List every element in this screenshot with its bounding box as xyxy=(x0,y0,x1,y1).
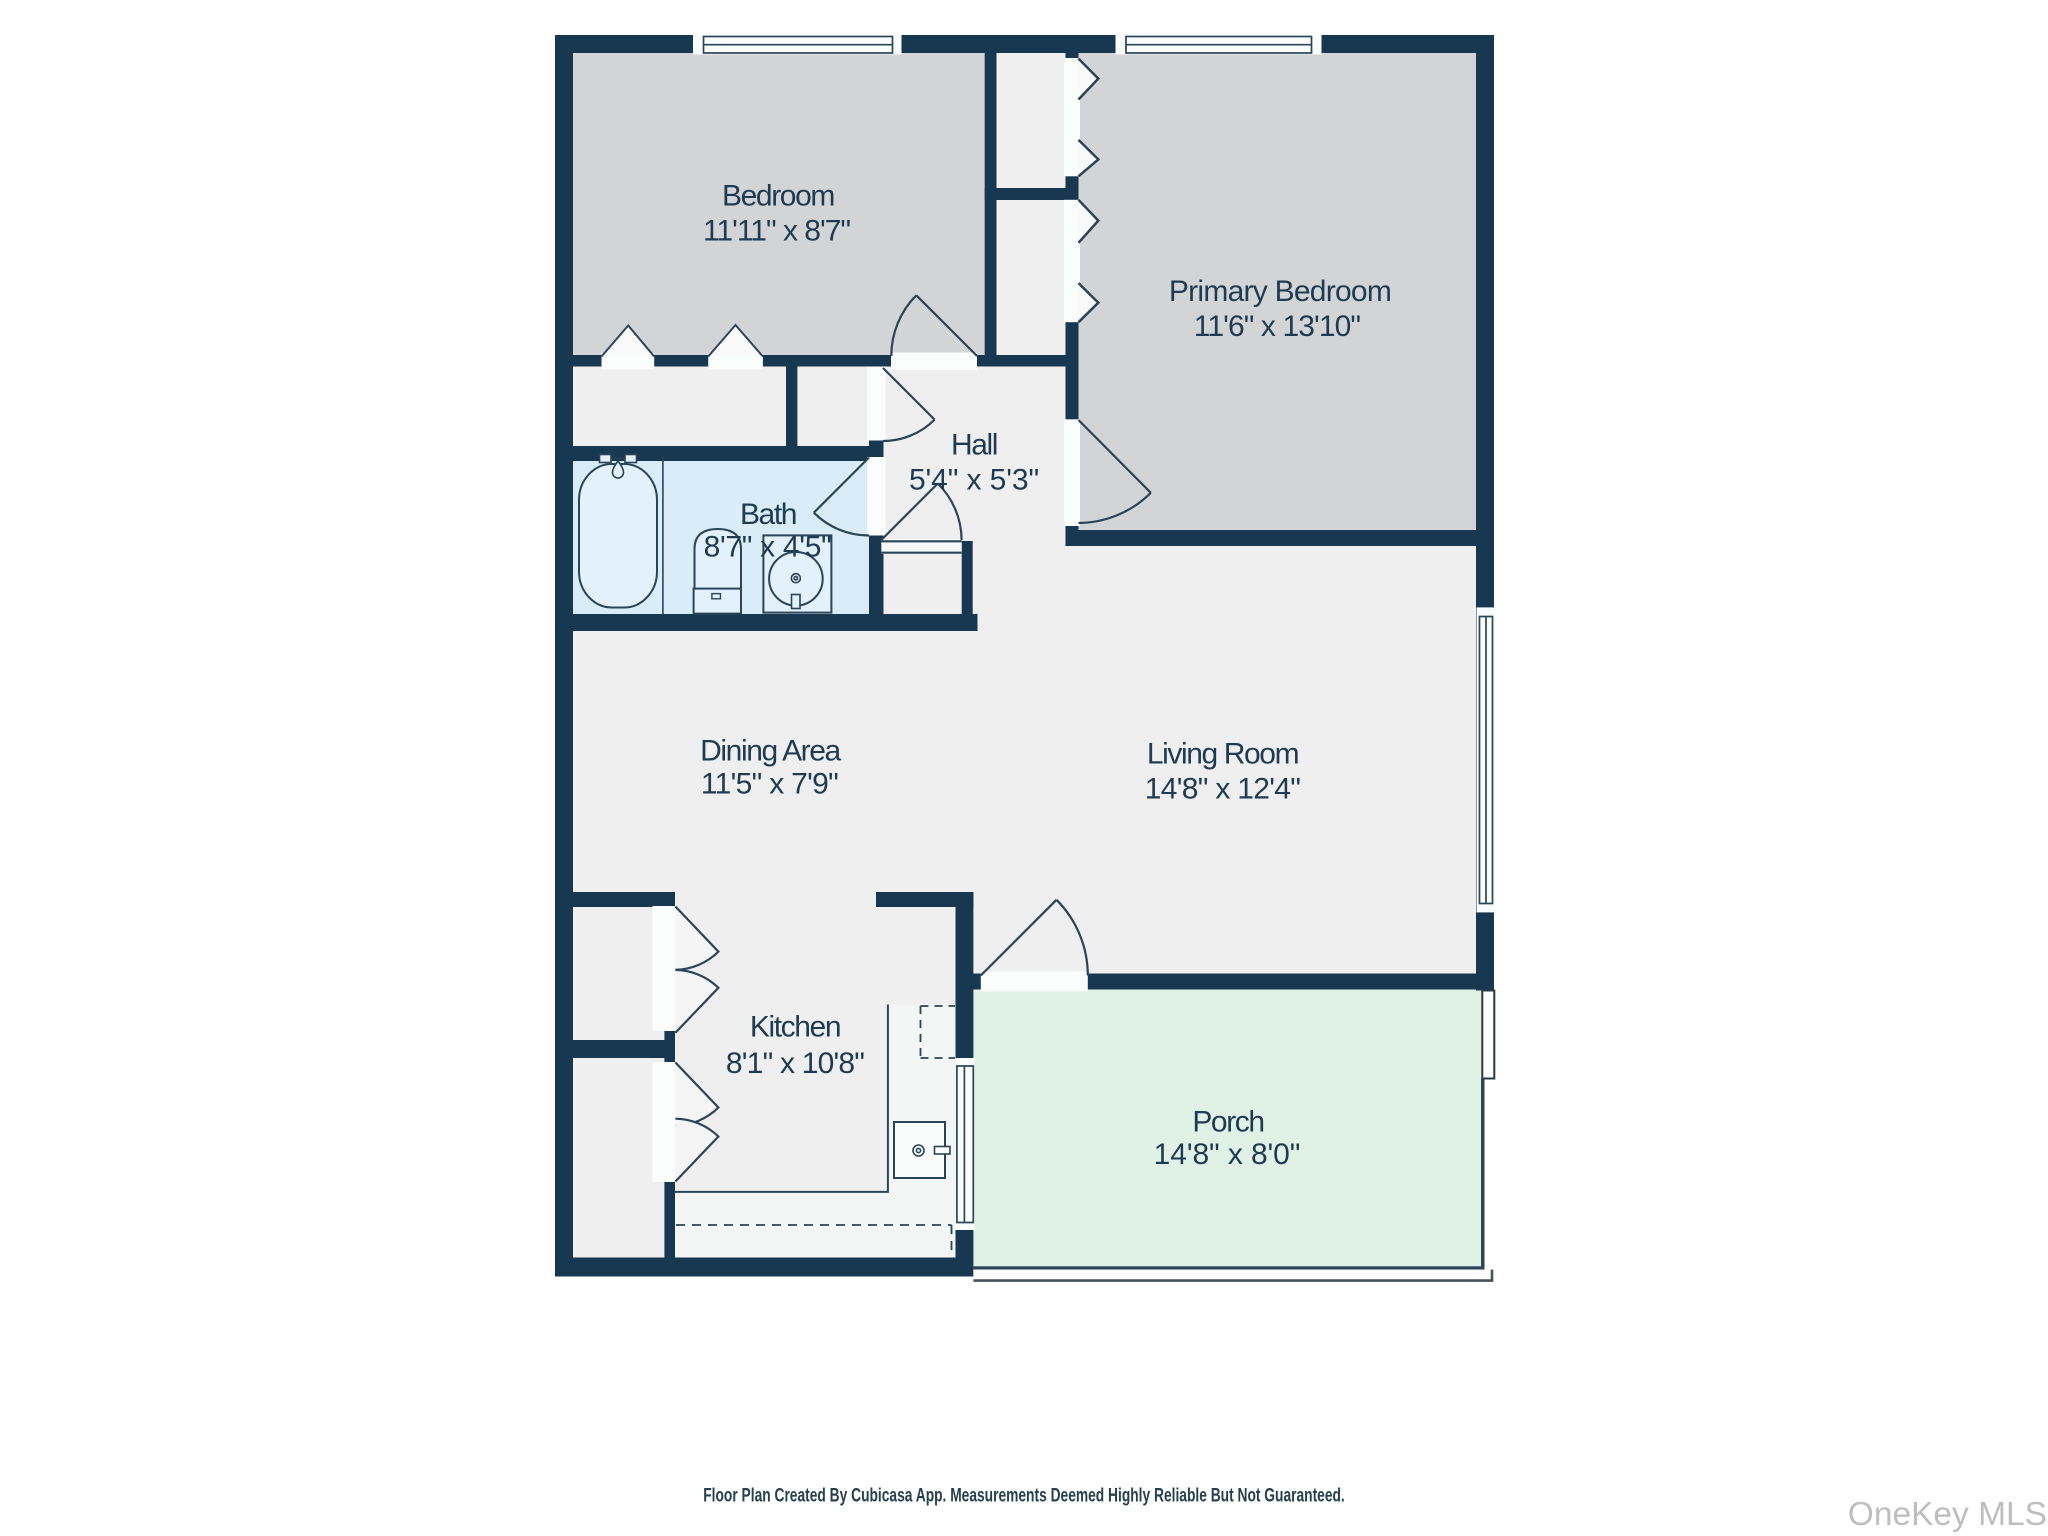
svg-text:Primary Bedroom: Primary Bedroom xyxy=(1169,275,1391,308)
svg-text:Living Room: Living Room xyxy=(1147,738,1299,771)
svg-text:Bedroom: Bedroom xyxy=(722,180,834,213)
svg-text:8'7" x 4'5": 8'7" x 4'5" xyxy=(704,531,832,564)
svg-text:OneKey MLS: OneKey MLS xyxy=(1848,1496,2047,1533)
svg-text:14'8" x 12'4": 14'8" x 12'4" xyxy=(1145,773,1300,806)
svg-text:Floor Plan Created By Cubicasa: Floor Plan Created By Cubicasa App. Meas… xyxy=(703,1484,1345,1506)
svg-text:Porch: Porch xyxy=(1192,1106,1263,1139)
svg-text:Kitchen: Kitchen xyxy=(750,1011,840,1044)
svg-text:11'5" x 7'9": 11'5" x 7'9" xyxy=(701,768,838,801)
svg-text:Dining Area: Dining Area xyxy=(700,735,841,768)
svg-text:Hall: Hall xyxy=(951,429,997,462)
svg-text:Bath: Bath xyxy=(740,498,796,531)
svg-text:14'8" x 8'0": 14'8" x 8'0" xyxy=(1154,1138,1301,1171)
svg-text:11'6" x 13'10": 11'6" x 13'10" xyxy=(1194,310,1361,343)
svg-text:5'4" x 5'3": 5'4" x 5'3" xyxy=(909,464,1039,497)
svg-text:8'1" x 10'8": 8'1" x 10'8" xyxy=(726,1047,864,1080)
svg-text:11'11" x 8'7": 11'11" x 8'7" xyxy=(703,215,850,248)
